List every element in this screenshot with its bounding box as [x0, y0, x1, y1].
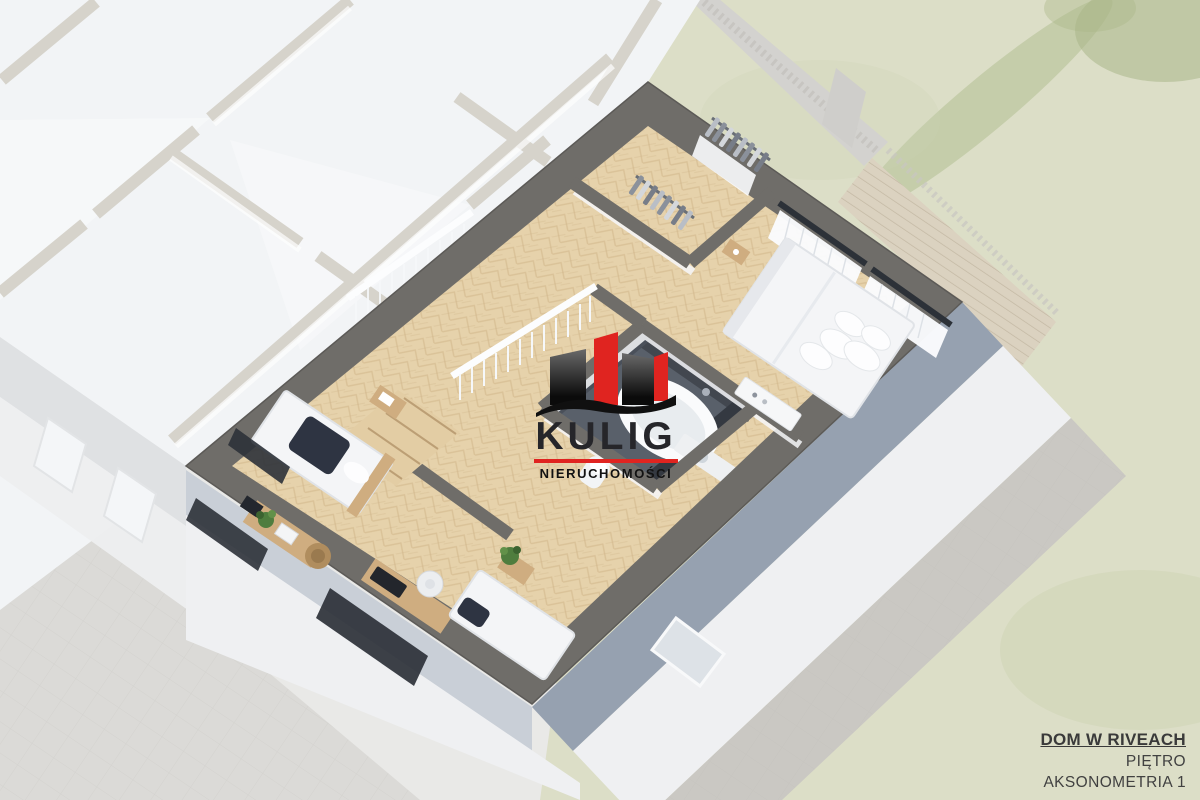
tub-faucet [702, 388, 710, 396]
desk-chair [305, 543, 331, 569]
title-block: DOM W RIVEACH PIĘTRO AKSONOMETRIA 1 [1040, 730, 1186, 792]
logo-black-building-right [622, 353, 654, 405]
project-title: DOM W RIVEACH [1040, 730, 1186, 750]
logo-red-bar [534, 459, 678, 463]
logo-tagline: NIERUCHOMOŚCI [534, 467, 678, 480]
logo-black-building-left [550, 349, 586, 405]
floor-label: PIĘTRO [1040, 753, 1186, 771]
logo-red-sliver [654, 352, 668, 401]
logo-watermark: KULIG NIERUCHOMOŚCI [534, 331, 678, 480]
office-chair [417, 571, 443, 597]
view-label: AKSONOMETRIA 1 [1040, 774, 1186, 792]
logo-red-tower [594, 332, 618, 405]
logo-company-name: KULIG [534, 417, 678, 456]
building-logo-icon [534, 331, 678, 419]
